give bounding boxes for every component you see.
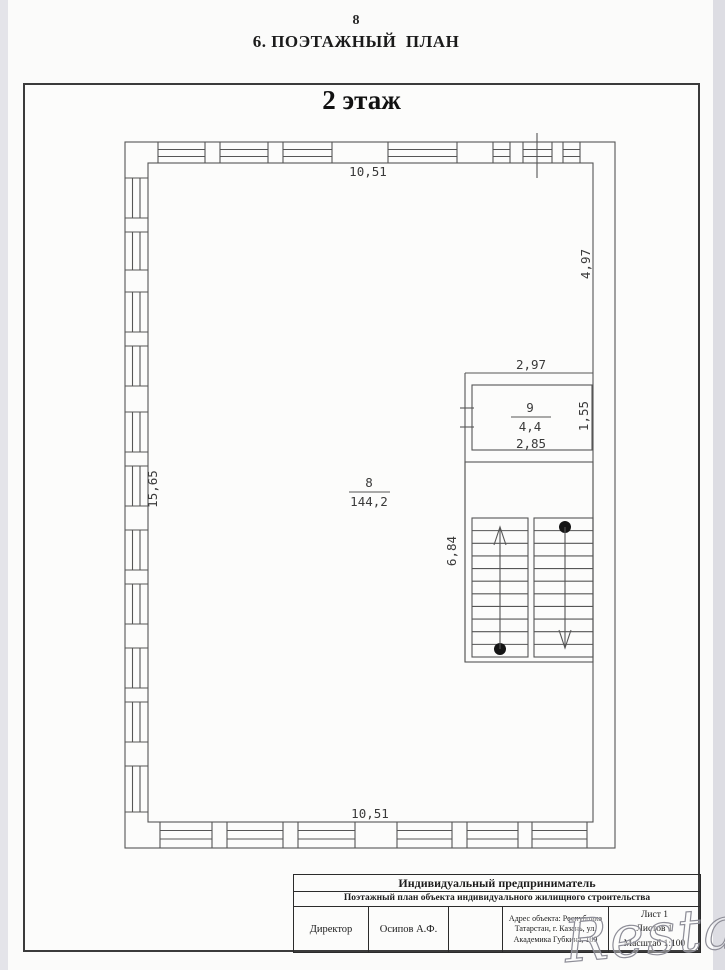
dimension-label-top-width: 10,51 bbox=[349, 164, 387, 179]
room9-number: 9 bbox=[526, 400, 534, 415]
titleblock-address-line2: Татарстан, г. Казань, ул. bbox=[515, 924, 597, 934]
titleblock-sheet-info: Лист 1 Листов 1 Масштаб 1:100 bbox=[609, 907, 700, 952]
dimension-label-room9-top: 2,97 bbox=[516, 357, 546, 372]
titleblock-role: Директор bbox=[294, 907, 369, 952]
stair-flight-right bbox=[534, 518, 593, 657]
floor-plan-drawing: 10,51 10,51 15,65 4,97 6,84 2,97 2,85 1,… bbox=[0, 0, 725, 970]
titleblock-name: Осипов А.Ф. bbox=[369, 907, 449, 952]
titleblock-address-line1: Адрес объекта: Республика bbox=[509, 914, 602, 924]
dimension-label-right-height: 4,97 bbox=[578, 249, 593, 279]
room8-area: 144,2 bbox=[350, 494, 388, 509]
dimension-label-room9-height: 1,55 bbox=[576, 401, 591, 431]
room8-number: 8 bbox=[365, 475, 373, 490]
titleblock-address-line3: Академика Губкина, 109 bbox=[514, 935, 598, 945]
dimension-label-bottom-width: 10,51 bbox=[351, 806, 389, 821]
titleblock-address: Адрес объекта: Республика Татарстан, г. … bbox=[503, 907, 609, 952]
titleblock-sheets-total: Листов 1 bbox=[636, 922, 672, 936]
stairwell bbox=[465, 462, 593, 662]
stair-up-arrow bbox=[494, 527, 506, 655]
titleblock-sheet: Лист 1 bbox=[641, 908, 668, 922]
title-block: Индивидуальный предприниматель Поэтажный… bbox=[293, 874, 701, 953]
titleblock-document-title: Поэтажный план объекта индивидуального ж… bbox=[294, 892, 700, 907]
titleblock-organization: Индивидуальный предприниматель bbox=[294, 875, 700, 892]
scanned-floorplan-page: { "page": { "page_number": "8", "section… bbox=[0, 0, 725, 970]
stair-down-arrow bbox=[559, 521, 571, 648]
stair-treads bbox=[472, 531, 593, 645]
dimension-label-stair-height: 6,84 bbox=[444, 536, 459, 566]
titleblock-signature-cell bbox=[449, 907, 503, 952]
dimension-label-left-height: 15,65 bbox=[145, 470, 160, 508]
titleblock-scale: Масштаб 1:100 bbox=[624, 937, 686, 951]
dimension-label-room9-bottom: 2,85 bbox=[516, 436, 546, 451]
room9-area: 4,4 bbox=[519, 419, 542, 434]
titleblock-bottom-row: Директор Осипов А.Ф. Адрес объекта: Респ… bbox=[294, 907, 700, 952]
